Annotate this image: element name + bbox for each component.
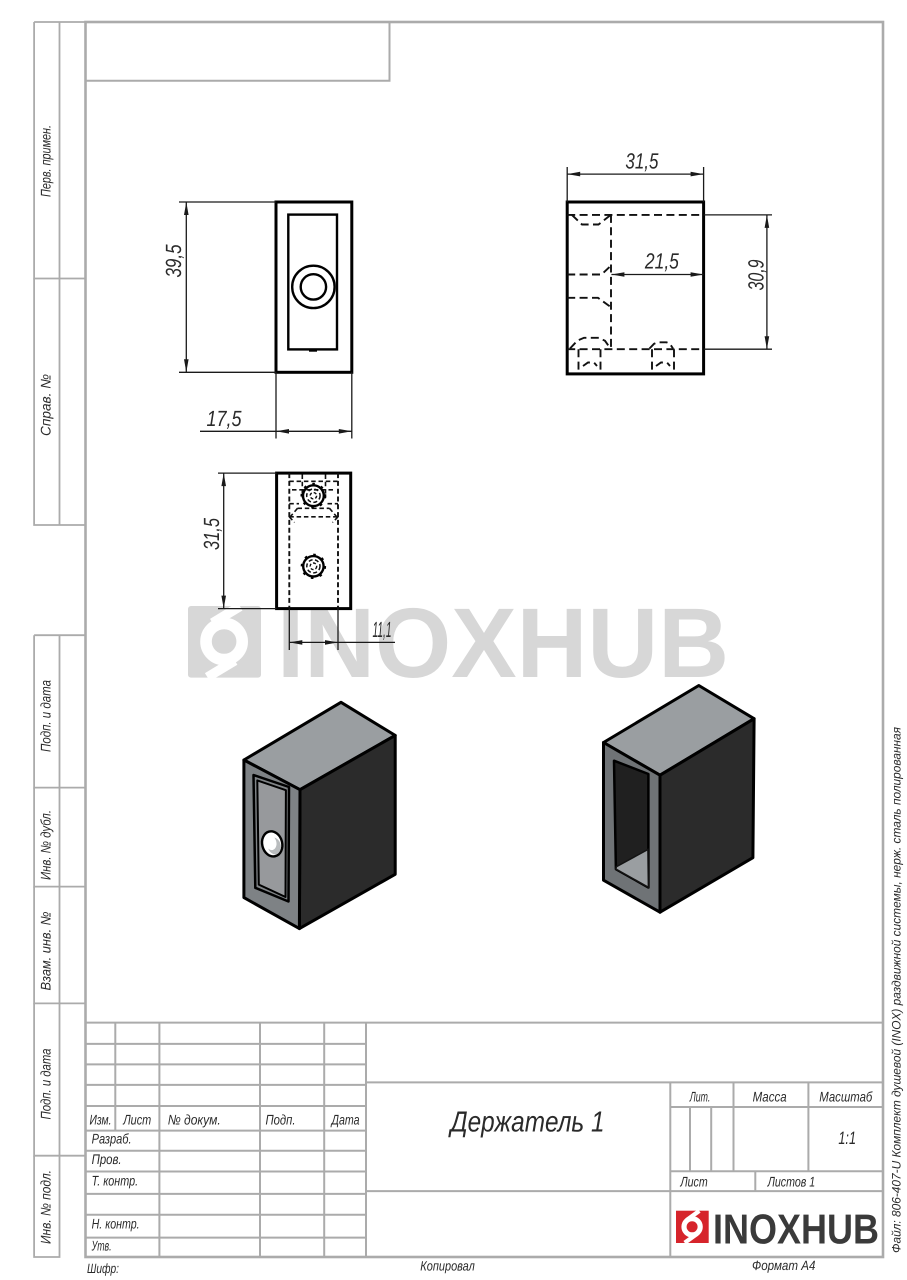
svg-text:1:1: 1:1 (838, 1128, 856, 1148)
svg-text:Дата: Дата (330, 1112, 360, 1128)
svg-text:Справ. №: Справ. № (38, 374, 54, 436)
svg-text:Перв. примен.: Перв. примен. (38, 125, 54, 197)
svg-text:Инв. № дубл.: Инв. № дубл. (38, 810, 54, 880)
svg-text:Разраб.: Разраб. (92, 1131, 132, 1147)
svg-text:Подп.: Подп. (266, 1112, 296, 1128)
svg-text:Н. контр.: Н. контр. (92, 1216, 140, 1232)
svg-text:17,5: 17,5 (207, 406, 243, 431)
svg-text:INOXHUB: INOXHUB (713, 1206, 879, 1253)
svg-text:№ докум.: № докум. (168, 1112, 221, 1128)
svg-text:Взам. инв. №: Взам. инв. № (38, 912, 54, 991)
svg-text:Держатель 1: Держатель 1 (448, 1107, 605, 1139)
svg-text:Масштаб: Масштаб (819, 1089, 873, 1105)
svg-text:Лист: Лист (122, 1112, 151, 1128)
svg-text:Лист: Лист (680, 1174, 708, 1190)
svg-text:31,5: 31,5 (625, 149, 659, 174)
svg-text:Т. контр.: Т. контр. (92, 1173, 139, 1189)
svg-text:Пров.: Пров. (92, 1151, 122, 1167)
svg-text:Подп. и дата: Подп. и дата (38, 680, 54, 752)
svg-text:21,5: 21,5 (644, 249, 679, 274)
svg-text:Формат А4: Формат А4 (752, 1258, 815, 1273)
svg-text:Шифр:: Шифр: (87, 1261, 119, 1276)
svg-text:31,5: 31,5 (199, 517, 224, 550)
svg-text:Листов 1: Листов 1 (767, 1174, 815, 1190)
svg-text:Инв. № подл.: Инв. № подл. (38, 1170, 54, 1244)
svg-text:Масса: Масса (753, 1089, 787, 1105)
svg-text:Подп. и дата: Подп. и дата (38, 1048, 54, 1119)
svg-text:39,5: 39,5 (161, 244, 186, 278)
svg-text:Лит.: Лит. (689, 1089, 710, 1105)
svg-text:Изм.: Изм. (90, 1112, 112, 1128)
svg-text:Копировал: Копировал (420, 1259, 475, 1274)
svg-text:30,9: 30,9 (744, 260, 769, 291)
svg-text:Файл: 806-407-U Комплект душев: Файл: 806-407-U Комплект душевой (INOX) … (890, 727, 904, 1253)
svg-text:11,1: 11,1 (373, 617, 392, 642)
svg-text:Утв.: Утв. (91, 1238, 112, 1254)
